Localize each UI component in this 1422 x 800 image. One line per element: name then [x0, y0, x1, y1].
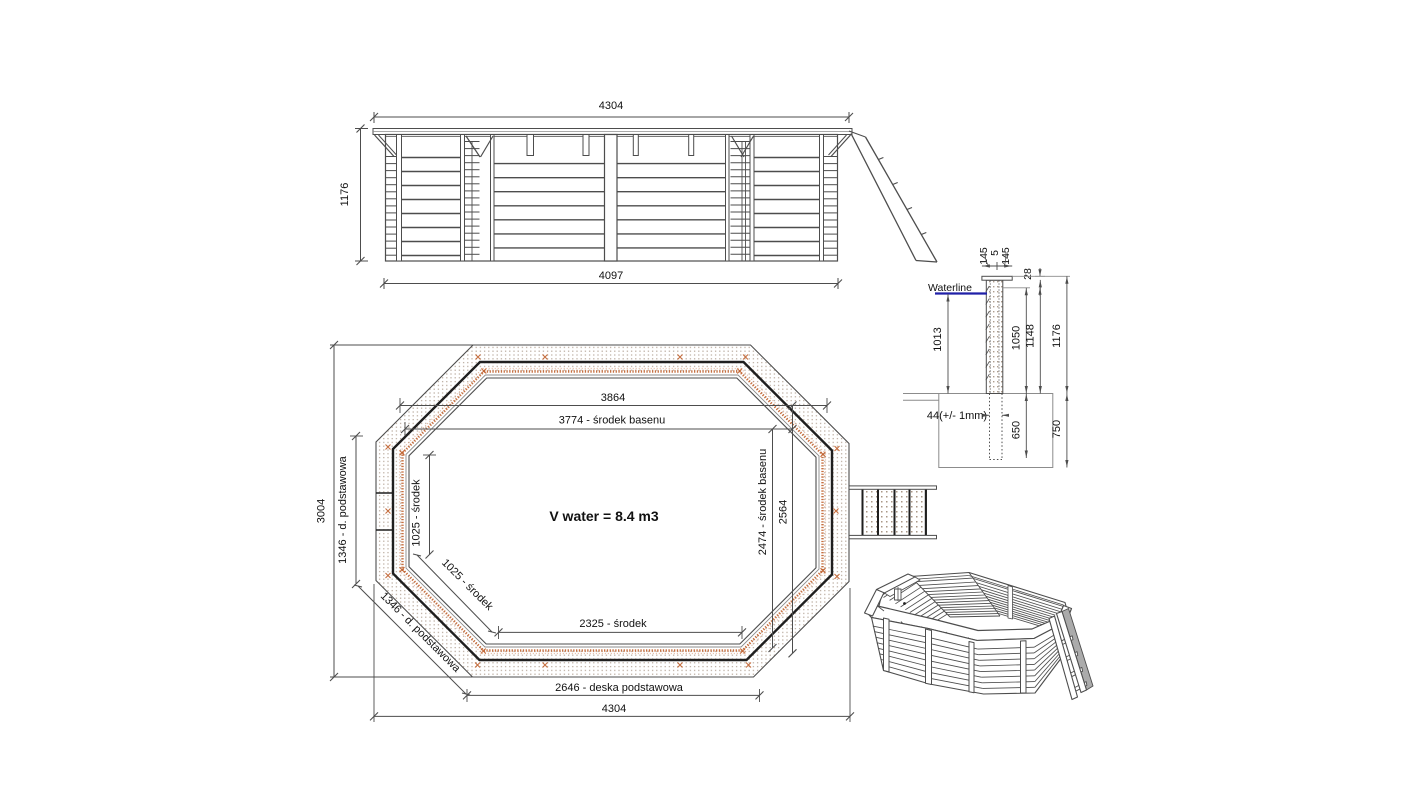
svg-text:3774 - środek basenu: 3774 - środek basenu [559, 415, 665, 427]
svg-text:1176: 1176 [339, 183, 351, 207]
svg-text:4304: 4304 [599, 100, 623, 112]
svg-text:1148: 1148 [1025, 324, 1037, 348]
svg-text:1025 - środek: 1025 - środek [411, 479, 423, 547]
svg-text:1050: 1050 [1011, 326, 1023, 350]
svg-text:1176: 1176 [1051, 324, 1063, 348]
svg-text:3004: 3004 [316, 499, 328, 523]
svg-text:1346 - d. podstawowa: 1346 - d. podstawowa [337, 455, 349, 564]
svg-text:650: 650 [1011, 421, 1023, 439]
svg-text:4097: 4097 [599, 270, 623, 282]
svg-text:2646 - deska podstawowa: 2646 - deska podstawowa [555, 682, 684, 694]
svg-text:4304: 4304 [602, 703, 626, 715]
svg-text:1013: 1013 [932, 327, 944, 351]
svg-text:750: 750 [1051, 420, 1063, 438]
svg-text:2564: 2564 [778, 500, 790, 524]
svg-text:2474 - środek basenu: 2474 - środek basenu [757, 449, 769, 555]
svg-text:44(+/- 1mm): 44(+/- 1mm) [927, 410, 987, 422]
svg-text:Waterline: Waterline [928, 282, 972, 294]
svg-text:3864: 3864 [601, 392, 625, 404]
svg-text:28: 28 [1022, 268, 1034, 280]
svg-text:V water = 8.4 m3: V water = 8.4 m3 [549, 508, 659, 524]
svg-text:2325 - środek: 2325 - środek [579, 618, 647, 630]
